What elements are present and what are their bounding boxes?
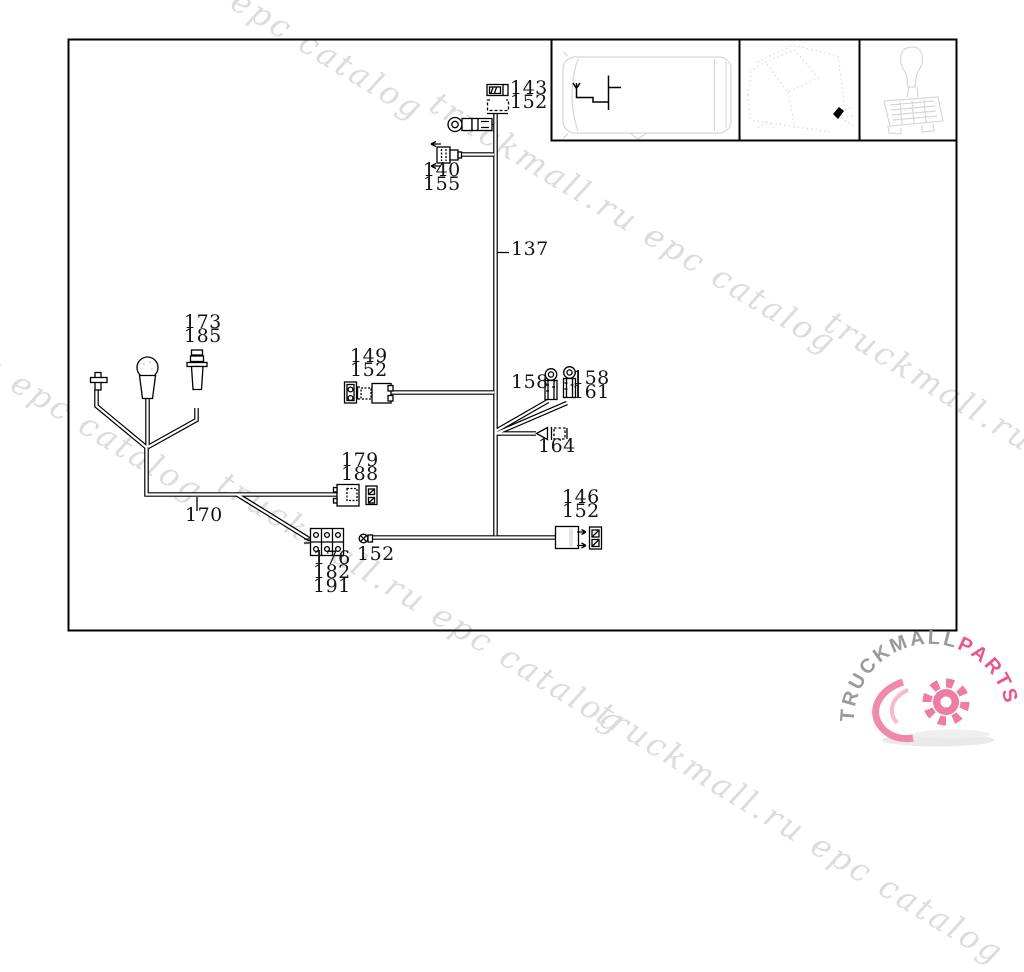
logo-text-accent: PARTS bbox=[955, 633, 1023, 708]
part-number-label: 137 bbox=[511, 240, 549, 259]
part-number-label: 185 bbox=[184, 327, 222, 346]
part-number-label: 152 bbox=[562, 502, 600, 521]
catalog-page: truckmall.ru epc catalog truckmall.ru ep… bbox=[0, 0, 1024, 750]
part-number-label: 191 bbox=[313, 577, 351, 596]
part-number-label: 155 bbox=[423, 175, 461, 194]
part-number-label: 161 bbox=[572, 383, 610, 402]
part-number-label: 170 bbox=[185, 506, 223, 525]
brand-logo: TRUCKMALLPARTS bbox=[834, 630, 1024, 750]
part-number-label: 152 bbox=[510, 93, 548, 112]
part-number-label: 158 bbox=[511, 373, 549, 392]
part-number-label: 152 bbox=[357, 545, 395, 564]
logo-shadow-inner bbox=[914, 730, 990, 739]
part-number-label: 152 bbox=[350, 361, 388, 380]
part-number-label: 164 bbox=[538, 437, 576, 456]
part-number-label: 188 bbox=[341, 465, 379, 484]
